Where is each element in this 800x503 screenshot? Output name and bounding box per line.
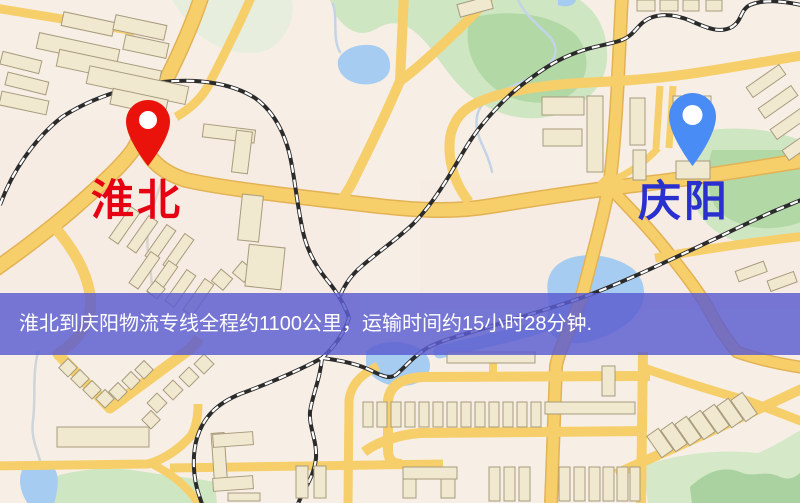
origin-pin-shape xyxy=(126,100,170,166)
destination-pin-hole xyxy=(683,105,703,125)
destination-pin-icon[interactable] xyxy=(669,93,716,166)
origin-pin-hole xyxy=(139,111,157,129)
destination-label: 庆阳 xyxy=(638,181,730,224)
map-canvas xyxy=(0,0,800,503)
route-info-banner: 淮北到庆阳物流专线全程约1100公里，运输时间约15小时28分钟. xyxy=(0,293,800,355)
map-view[interactable]: 淮北 庆阳 淮北到庆阳物流专线全程约1100公里，运输时间约15小时28分钟. xyxy=(0,0,800,503)
origin-label: 淮北 xyxy=(91,180,183,223)
destination-pin-shape xyxy=(669,93,716,166)
route-info-text: 淮北到庆阳物流专线全程约1100公里，运输时间约15小时28分钟. xyxy=(19,313,592,335)
origin-pin-icon[interactable] xyxy=(126,100,170,166)
